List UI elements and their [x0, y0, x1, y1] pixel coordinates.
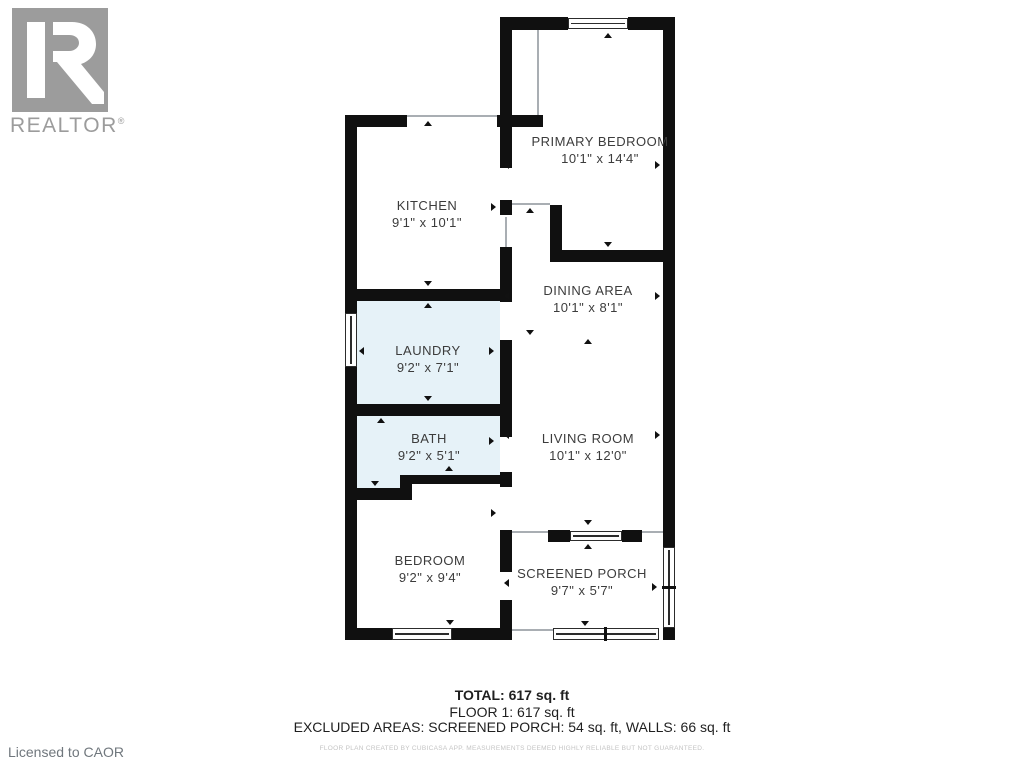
measure-arrow-icon: [424, 281, 432, 286]
wall-segment: [663, 17, 675, 530]
wall-segment: [345, 628, 392, 640]
measure-arrow-icon: [584, 520, 592, 525]
measure-arrow-icon: [584, 339, 592, 344]
room-name: BEDROOM: [395, 552, 466, 569]
room-name: BATH: [398, 430, 460, 447]
opening-line: [512, 629, 553, 631]
room-label-bedroom: BEDROOM 9'2" x 9'4": [395, 552, 466, 586]
opening-line: [512, 531, 548, 533]
measure-arrow-icon: [347, 437, 352, 445]
opening-line: [512, 203, 550, 205]
room-dims: 9'1" x 10'1": [392, 214, 462, 231]
room-name: LAUNDRY: [395, 342, 460, 359]
realtor-logo-icon: [12, 8, 108, 112]
opening-line: [407, 115, 497, 117]
room-dims: 9'2" x 7'1": [395, 359, 460, 376]
wall-segment: [548, 530, 570, 542]
measure-arrow-icon: [526, 208, 534, 213]
measure-arrow-icon: [604, 242, 612, 247]
wall-segment: [500, 530, 512, 572]
measure-arrow-icon: [424, 121, 432, 126]
wall-segment: [345, 115, 357, 313]
room-label-dining-area: DINING AREA 10'1" x 8'1": [543, 282, 632, 316]
floor-area-text: FLOOR 1: 617 sq. ft: [0, 704, 1024, 720]
sliding-door-window: [570, 531, 622, 541]
room-label-living-room: LIVING ROOM 10'1" x 12'0": [542, 430, 634, 464]
wall-segment: [500, 340, 512, 437]
wall-segment: [500, 17, 512, 168]
measure-arrow-icon: [491, 203, 496, 211]
measure-arrow-icon: [526, 330, 534, 335]
opening-line: [505, 217, 507, 247]
measure-arrow-icon: [359, 347, 364, 355]
room-dims: 10'1" x 8'1": [543, 299, 632, 316]
registered-mark: ®: [118, 116, 125, 126]
measure-arrow-icon: [347, 203, 352, 211]
porch-window: [663, 547, 675, 628]
measure-arrow-icon: [489, 437, 494, 445]
measure-arrow-icon: [424, 396, 432, 401]
wall-segment: [550, 250, 675, 262]
measure-arrow-icon: [604, 33, 612, 38]
measure-arrow-icon: [504, 292, 509, 300]
porch-window: [553, 628, 659, 640]
license-text: Licensed to CAOR: [8, 744, 124, 760]
opening-line: [642, 531, 663, 533]
wall-segment: [345, 404, 512, 416]
wall-segment: [500, 200, 512, 215]
window: [392, 628, 452, 640]
wall-segment: [500, 600, 512, 640]
wall-segment: [622, 530, 642, 542]
measure-arrow-icon: [347, 509, 352, 517]
room-name: DINING AREA: [543, 282, 632, 299]
measure-arrow-icon: [652, 583, 657, 591]
room-dims: 10'1" x 14'4": [531, 150, 668, 167]
wall-segment: [345, 488, 407, 500]
floor-plan-page: REALTOR®: [0, 0, 1024, 768]
measure-arrow-icon: [424, 303, 432, 308]
realtor-logo-label: REALTOR®: [10, 114, 124, 138]
room-name: KITCHEN: [392, 197, 462, 214]
total-area-text: TOTAL: 617 sq. ft: [0, 687, 1024, 703]
closet-opening-line: [537, 30, 539, 115]
room-name: LIVING ROOM: [542, 430, 634, 447]
room-label-bath: BATH 9'2" x 5'1": [398, 430, 460, 464]
wall-segment: [500, 472, 512, 487]
excluded-areas-text: EXCLUDED AREAS: SCREENED PORCH: 54 sq. f…: [0, 719, 1024, 735]
measure-arrow-icon: [655, 292, 660, 300]
room-label-laundry: LAUNDRY 9'2" x 7'1": [395, 342, 460, 376]
room-label-primary-bedroom: PRIMARY BEDROOM 10'1" x 14'4": [531, 133, 668, 167]
wall-segment: [407, 475, 512, 484]
measure-arrow-icon: [445, 466, 453, 471]
measure-arrow-icon: [371, 481, 379, 486]
wall-segment: [345, 115, 407, 127]
room-dims: 9'7" x 5'7": [517, 582, 647, 599]
wall-segment: [345, 289, 512, 301]
measure-arrow-icon: [446, 620, 454, 625]
room-label-kitchen: KITCHEN 9'1" x 10'1": [392, 197, 462, 231]
room-name: SCREENED PORCH: [517, 565, 647, 582]
room-dims: 9'2" x 9'4": [395, 569, 466, 586]
measure-arrow-icon: [581, 621, 589, 626]
room-dims: 10'1" x 12'0": [542, 447, 634, 464]
measure-arrow-icon: [489, 347, 494, 355]
room-name: PRIMARY BEDROOM: [531, 133, 668, 150]
window: [345, 313, 357, 367]
measure-arrow-icon: [377, 418, 385, 423]
wall-segment: [663, 628, 675, 640]
wall-segment: [663, 530, 675, 547]
measure-arrow-icon: [655, 431, 660, 439]
room-dims: 9'2" x 5'1": [398, 447, 460, 464]
room-label-screened-porch: SCREENED PORCH 9'7" x 5'7": [517, 565, 647, 599]
measure-arrow-icon: [491, 509, 496, 517]
measure-arrow-icon: [504, 161, 509, 169]
measure-arrow-icon: [584, 544, 592, 549]
door-arrow-icon: [504, 579, 509, 587]
disclaimer-text: FLOOR PLAN CREATED BY CUBICASA APP. MEAS…: [0, 745, 1024, 752]
window: [568, 18, 628, 29]
measure-arrow-icon: [504, 431, 509, 439]
